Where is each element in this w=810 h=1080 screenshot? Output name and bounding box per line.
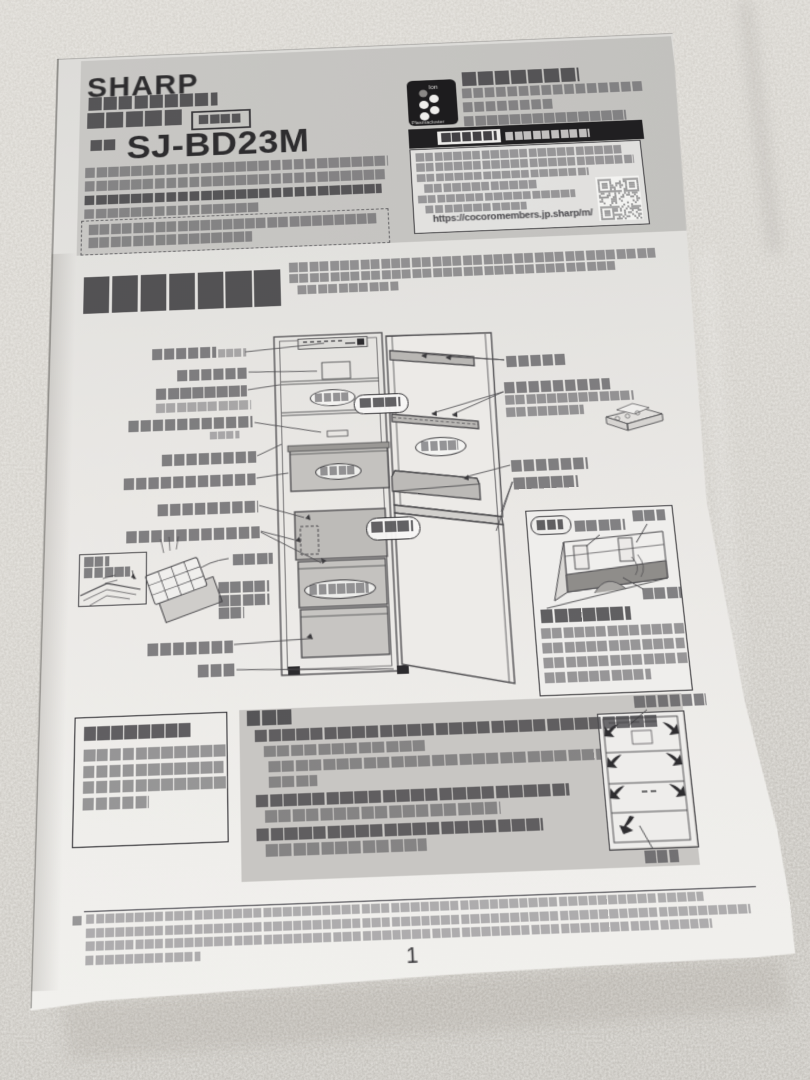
svg-text:Ion: Ion: [428, 85, 438, 91]
